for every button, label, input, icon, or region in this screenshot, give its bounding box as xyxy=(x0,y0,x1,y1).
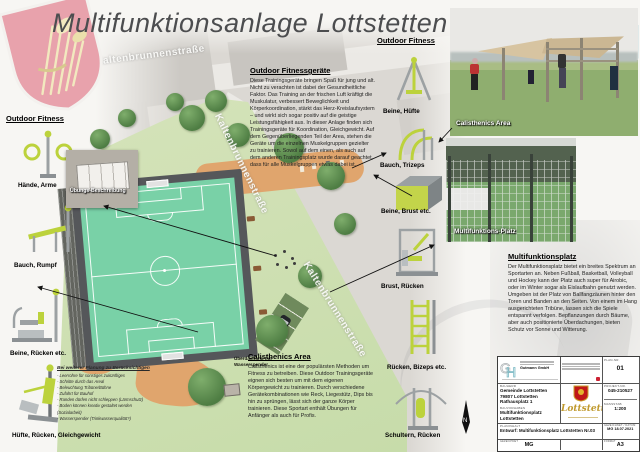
poster-sheet: Überdachung mit Wasserspender Kaltenbrun… xyxy=(0,0,640,452)
annotation-arrows xyxy=(0,0,640,452)
